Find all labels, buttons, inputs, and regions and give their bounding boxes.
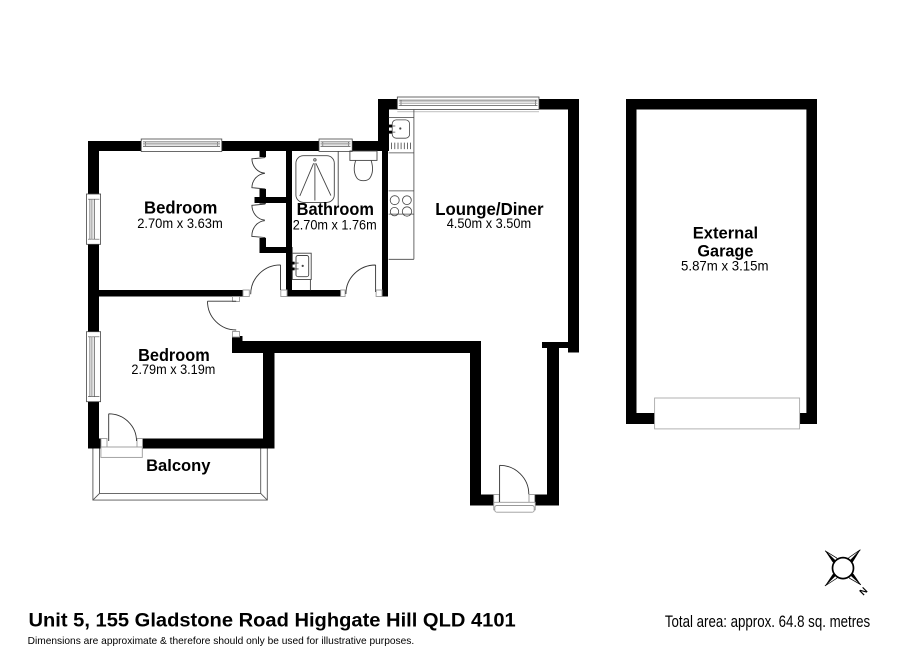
svg-text:2.70m x 3.63m: 2.70m x 3.63m [137,215,223,231]
svg-text:N: N [856,584,869,597]
svg-text:5.87m x 3.15m: 5.87m x 3.15m [681,258,769,274]
svg-text:External: External [693,223,758,242]
svg-text:Total area: approx. 64.8 sq. m: Total area: approx. 64.8 sq. metres [665,613,870,631]
svg-text:2.70m x 1.76m: 2.70m x 1.76m [293,217,377,233]
svg-text:2.79m x 3.19m: 2.79m x 3.19m [131,361,215,377]
svg-text:Unit 5, 155 Gladstone Road Hig: Unit 5, 155 Gladstone Road Highgate Hill… [29,610,516,632]
svg-text:4.50m x 3.50m: 4.50m x 3.50m [447,215,531,231]
svg-text:Dimensions are approximate & t: Dimensions are approximate & therefore s… [28,636,415,647]
svg-text:Balcony: Balcony [146,457,211,475]
